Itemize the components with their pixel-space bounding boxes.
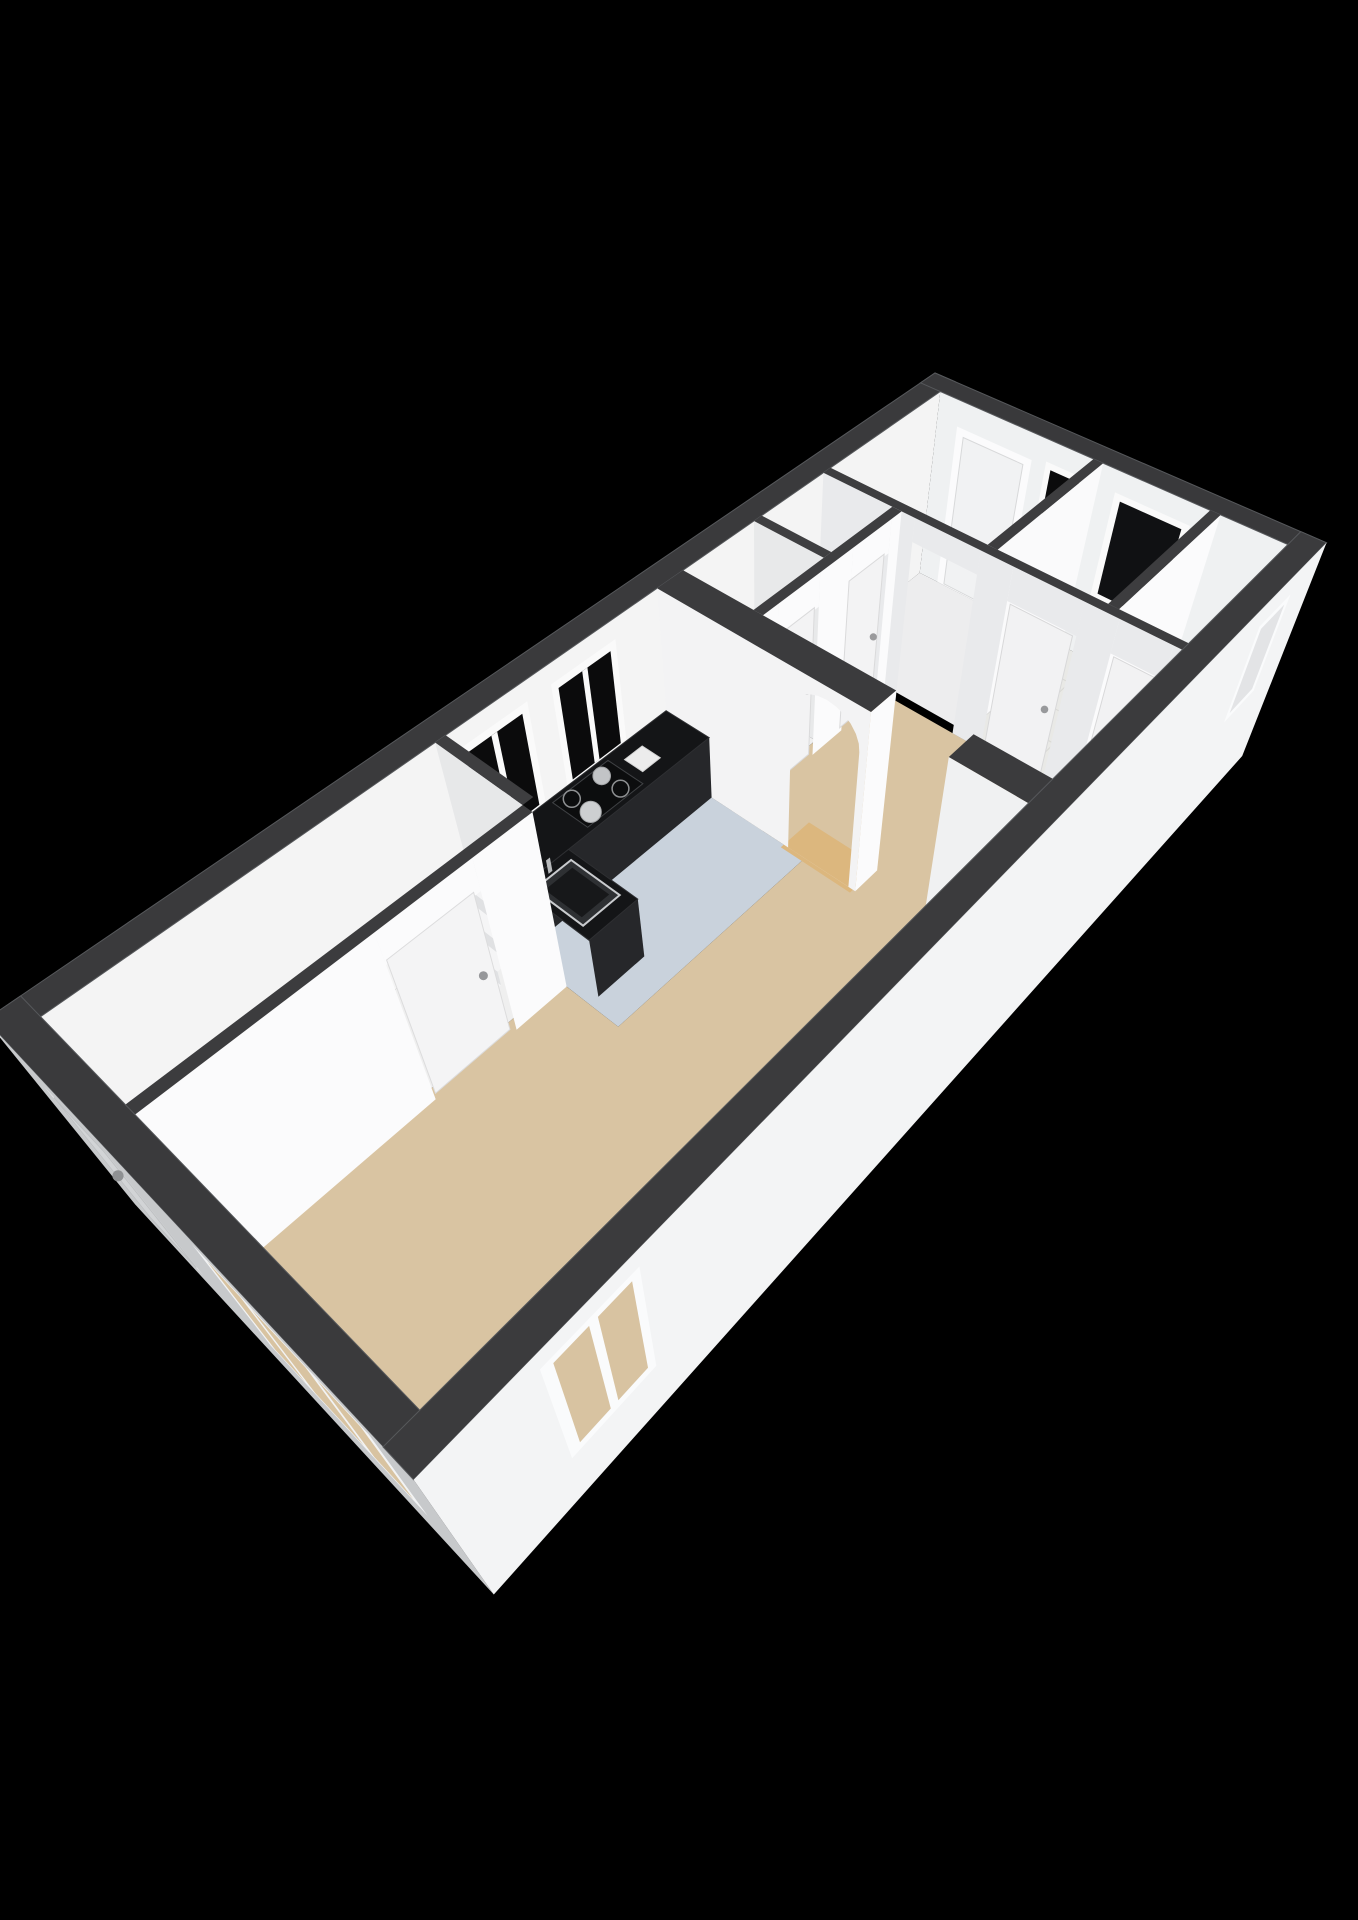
bathroom-door-handle bbox=[1041, 706, 1049, 714]
closet-door-handle bbox=[870, 633, 877, 640]
floorplan-3d-view bbox=[0, 0, 1358, 1920]
cooking-pan bbox=[593, 767, 611, 785]
floorplan-canvas bbox=[0, 0, 1358, 1920]
cooking-pot bbox=[580, 801, 601, 822]
stairwell-door-handle bbox=[479, 971, 488, 980]
building-entrance-door-handle bbox=[112, 1170, 123, 1181]
